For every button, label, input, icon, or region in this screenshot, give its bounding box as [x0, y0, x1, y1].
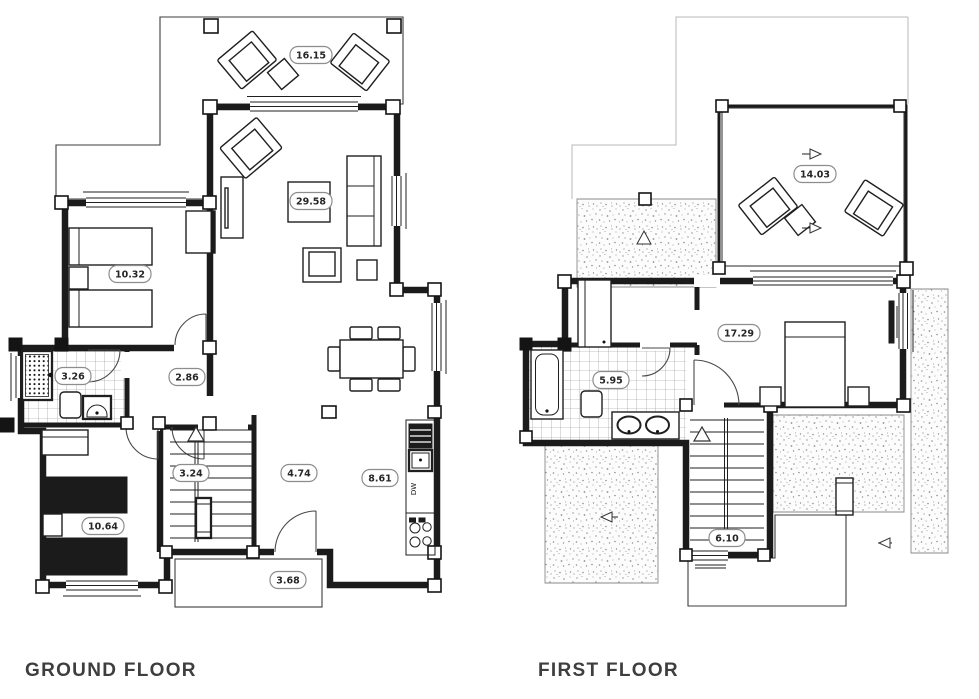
- window: [750, 271, 896, 287]
- svg-text:10.32: 10.32: [115, 270, 145, 281]
- door-opening: [694, 275, 720, 287]
- lounge-chair: [330, 33, 390, 91]
- svg-text:8.61: 8.61: [368, 474, 391, 485]
- svg-text:16.15: 16.15: [296, 51, 326, 62]
- first-floor-plan: 14.03 17.29 5.95 6.10: [520, 17, 948, 606]
- nightstand: [848, 387, 869, 406]
- area-label-stairs: 3.24: [173, 465, 209, 482]
- window: [247, 97, 361, 113]
- toilet: [60, 392, 81, 418]
- door-opening: [691, 355, 703, 403]
- bed: [45, 477, 127, 513]
- bed: [69, 228, 152, 265]
- wardrobe: [186, 211, 215, 253]
- area-label-bedroom-1: 10.32: [109, 266, 151, 283]
- area-label-entry-deck: 3.68: [270, 572, 306, 589]
- roof-hatch: [836, 478, 853, 515]
- kitchen-sink: [409, 450, 432, 471]
- svg-text:4.74: 4.74: [287, 469, 311, 480]
- ground-floor-plan: DW 16.15 29.58 10.32 3.26 2.86 3.24 4.74…: [0, 17, 446, 607]
- window: [692, 550, 728, 569]
- stairs-up-arrow-icon: [694, 427, 710, 441]
- staircase: [690, 418, 764, 540]
- door-opening: [174, 342, 206, 354]
- lounge-chair: [217, 31, 277, 90]
- tv: [889, 301, 897, 343]
- double-bed: [785, 322, 845, 407]
- svg-text:3.26: 3.26: [61, 372, 85, 383]
- roof-area: [911, 289, 948, 553]
- door-opening: [274, 546, 317, 558]
- door-opening: [121, 352, 133, 378]
- svg-text:5.95: 5.95: [599, 376, 622, 387]
- armchair: [220, 117, 282, 178]
- window: [431, 300, 447, 374]
- bed: [45, 538, 127, 575]
- svg-text:17.29: 17.29: [724, 329, 754, 340]
- area-label-bathroom: 3.26: [55, 368, 91, 385]
- svg-text:3.24: 3.24: [179, 469, 203, 480]
- shower: [22, 351, 53, 400]
- svg-text:2.86: 2.86: [175, 373, 199, 384]
- area-label-bathroom: 5.95: [593, 372, 629, 389]
- floor-plan-sheet: DW 16.15 29.58 10.32 3.26 2.86 3.24 4.74…: [0, 0, 979, 699]
- toilet: [581, 391, 602, 417]
- armchair: [303, 248, 341, 282]
- floor-plan-drawing: DW 16.15 29.58 10.32 3.26 2.86 3.24 4.74…: [0, 0, 979, 699]
- area-label-hall: 2.86: [169, 369, 205, 386]
- deck-post: [387, 19, 401, 33]
- entry-door: [275, 511, 316, 552]
- svg-text:29.58: 29.58: [296, 197, 326, 208]
- svg-text:3.68: 3.68: [276, 576, 300, 587]
- area-label-living-room: 29.58: [290, 193, 332, 210]
- sink: [83, 396, 111, 419]
- ground-floor-title: GROUND FLOOR: [25, 660, 197, 682]
- nightstand: [43, 514, 62, 536]
- tv-unit: [221, 177, 243, 238]
- terrace-parapet: [719, 106, 906, 268]
- area-label-terrace: 14.03: [794, 166, 836, 183]
- lounge-chair: [844, 180, 903, 237]
- first-floor-title: FIRST FLOOR: [538, 660, 679, 682]
- window: [391, 173, 407, 229]
- area-label-bedroom-2: 10.64: [82, 518, 124, 535]
- area-label-master-bedroom: 17.29: [718, 325, 760, 342]
- window: [63, 580, 141, 597]
- deck-post: [204, 19, 218, 33]
- area-label-corridor: 4.74: [281, 465, 317, 482]
- wardrobe: [42, 430, 88, 455]
- cooktop: [410, 518, 432, 547]
- slope-arrow-icon: [802, 149, 821, 159]
- area-label-stairs: 6.10: [709, 530, 745, 547]
- nightstand: [760, 387, 781, 406]
- roof-area: [545, 445, 658, 583]
- nightstand: [69, 267, 88, 289]
- sofa: [347, 156, 381, 246]
- dishwasher-label: DW: [410, 483, 418, 495]
- wardrobe: [578, 280, 611, 347]
- bed: [69, 290, 152, 327]
- bathtub: [531, 350, 563, 419]
- door: [126, 427, 158, 459]
- svg-text:6.10: 6.10: [715, 534, 739, 545]
- door: [175, 314, 206, 345]
- side-table: [357, 260, 377, 280]
- area-label-rear-deck: 16.15: [290, 47, 332, 64]
- dining-set: [328, 327, 415, 391]
- staircase: [170, 427, 252, 542]
- slope-arrow-icon: [878, 538, 892, 548]
- window: [83, 192, 189, 209]
- lounge-chair: [738, 177, 798, 235]
- door-opening: [690, 399, 724, 411]
- door-opening: [640, 339, 670, 351]
- area-label-kitchen: 8.61: [362, 470, 398, 487]
- double-sink-vanity: [612, 412, 679, 439]
- roof-post: [639, 193, 651, 205]
- kitchen-counter: DW: [406, 420, 435, 555]
- svg-text:10.64: 10.64: [88, 522, 118, 533]
- svg-text:14.03: 14.03: [800, 170, 830, 181]
